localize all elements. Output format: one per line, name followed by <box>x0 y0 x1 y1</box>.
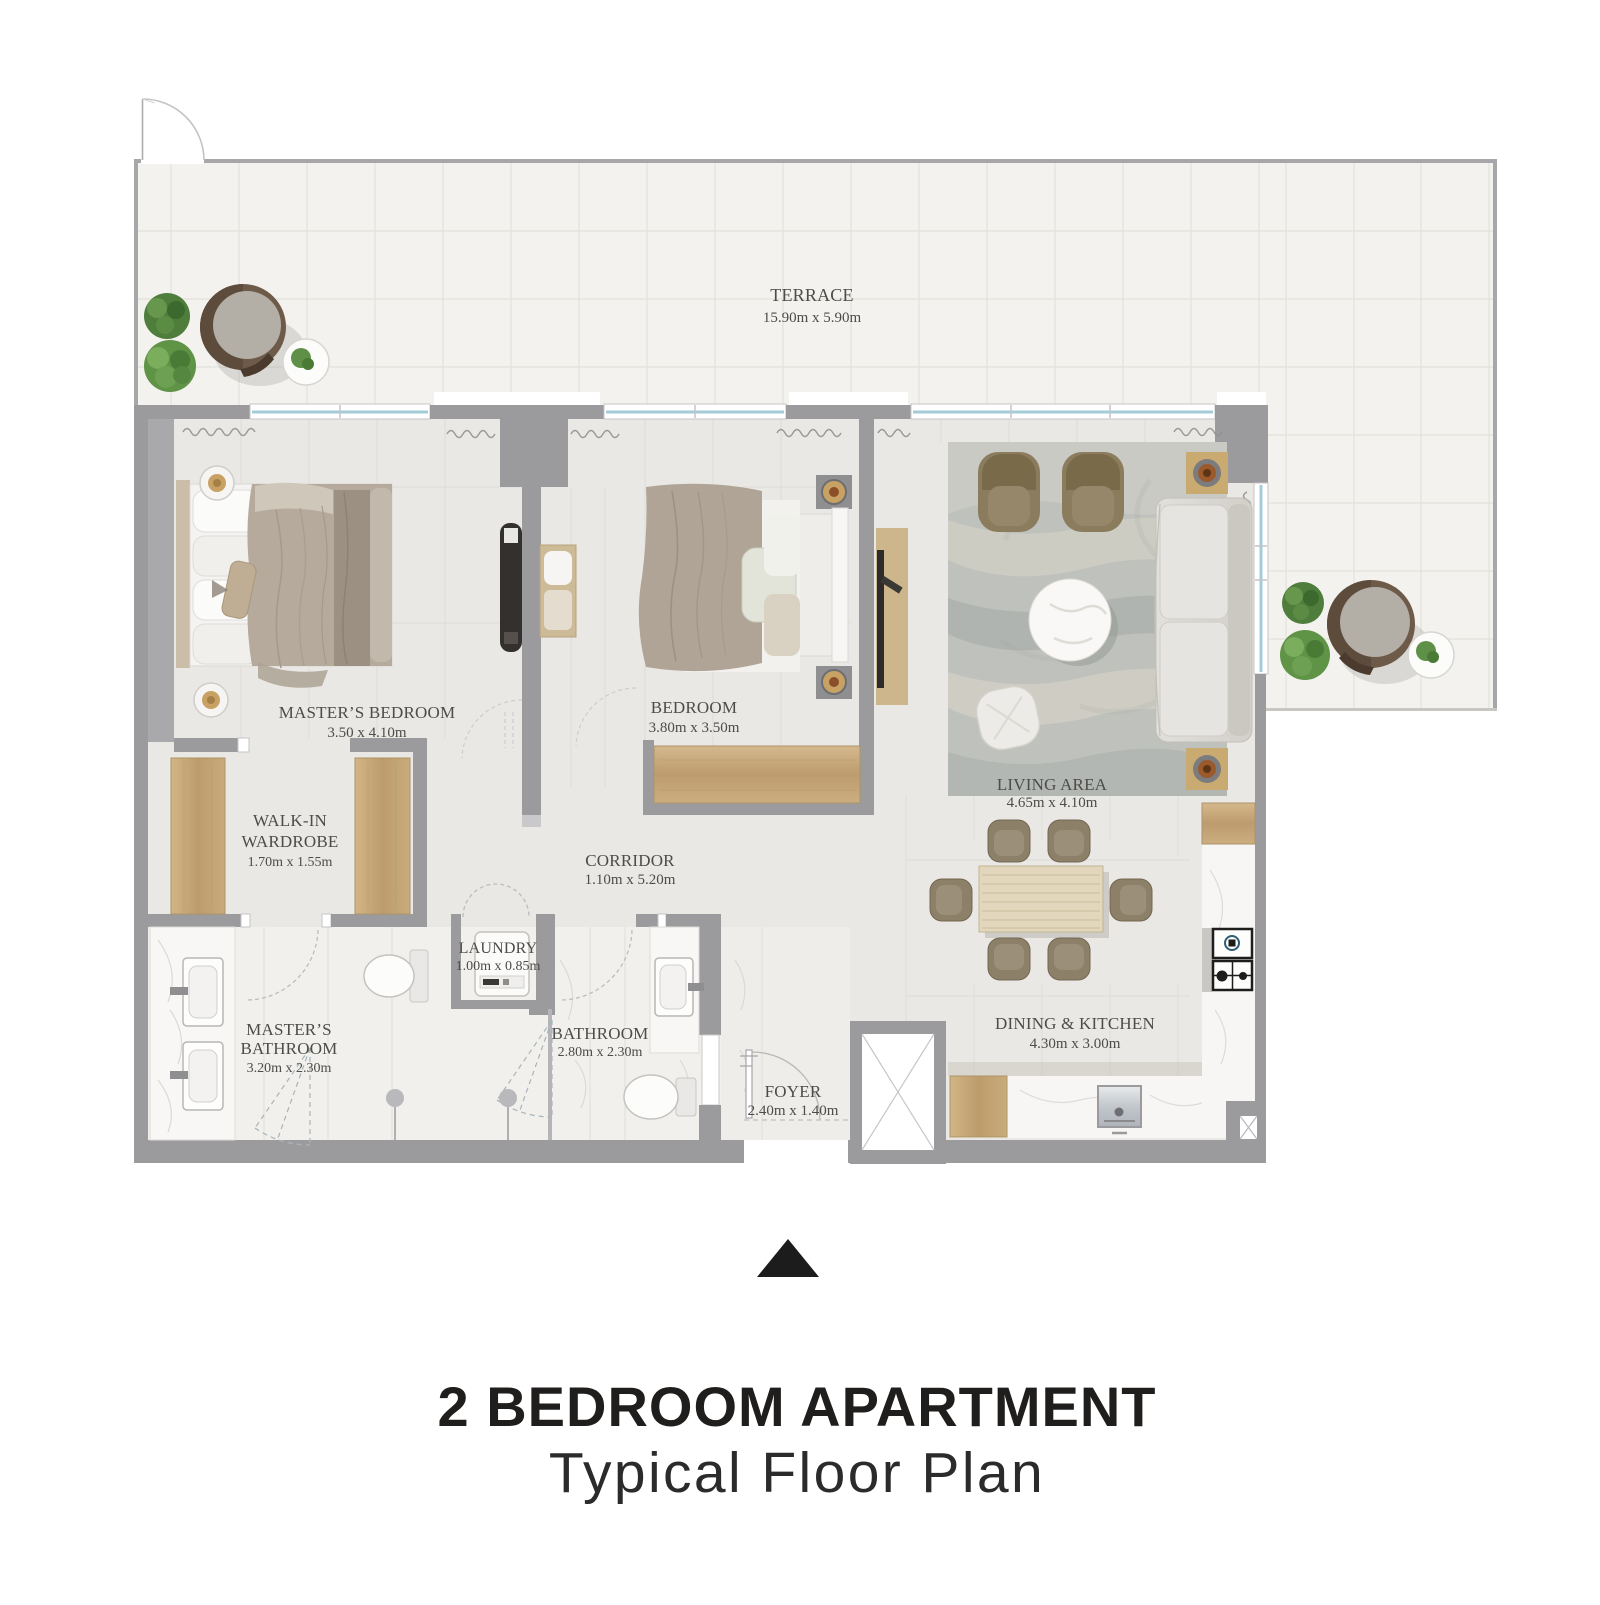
svg-text:MASTER’S BEDROOM: MASTER’S BEDROOM <box>279 703 456 722</box>
svg-text:1.10m x 5.20m: 1.10m x 5.20m <box>585 872 676 888</box>
svg-text:FOYER: FOYER <box>765 1082 822 1101</box>
svg-text:2 BEDROOM APARTMENT: 2 BEDROOM APARTMENT <box>438 1375 1157 1438</box>
svg-text:15.90m x 5.90m: 15.90m x 5.90m <box>763 310 862 326</box>
svg-text:3.80m x 3.50m: 3.80m x 3.50m <box>649 720 740 736</box>
svg-text:2.80m x 2.30m: 2.80m x 2.30m <box>558 1045 643 1060</box>
svg-text:DINING & KITCHEN: DINING & KITCHEN <box>995 1014 1155 1033</box>
svg-text:LIVING AREA: LIVING AREA <box>997 775 1108 794</box>
svg-text:2.40m x 1.40m: 2.40m x 1.40m <box>748 1103 839 1119</box>
svg-text:BATHROOM: BATHROOM <box>551 1024 648 1043</box>
svg-text:3.50 x 4.10m: 3.50 x 4.10m <box>327 725 407 741</box>
svg-text:BEDROOM: BEDROOM <box>651 698 737 717</box>
svg-text:4.30m x 3.00m: 4.30m x 3.00m <box>1030 1036 1121 1052</box>
svg-text:MASTER’S: MASTER’S <box>246 1020 332 1039</box>
svg-text:BATHROOM: BATHROOM <box>240 1039 337 1058</box>
svg-text:1.70m x 1.55m: 1.70m x 1.55m <box>248 855 333 870</box>
svg-text:3.20m x 2.30m: 3.20m x 2.30m <box>247 1061 332 1076</box>
svg-text:CORRIDOR: CORRIDOR <box>585 851 675 870</box>
svg-text:WARDROBE: WARDROBE <box>242 832 339 851</box>
svg-text:WALK-IN: WALK-IN <box>253 811 327 830</box>
svg-text:TERRACE: TERRACE <box>770 285 853 305</box>
svg-text:4.65m x 4.10m: 4.65m x 4.10m <box>1007 795 1098 811</box>
svg-text:LAUNDRY: LAUNDRY <box>459 940 538 957</box>
svg-text:Typical Floor Plan: Typical Floor Plan <box>549 1441 1045 1505</box>
svg-text:1.00m x 0.85m: 1.00m x 0.85m <box>456 959 541 974</box>
